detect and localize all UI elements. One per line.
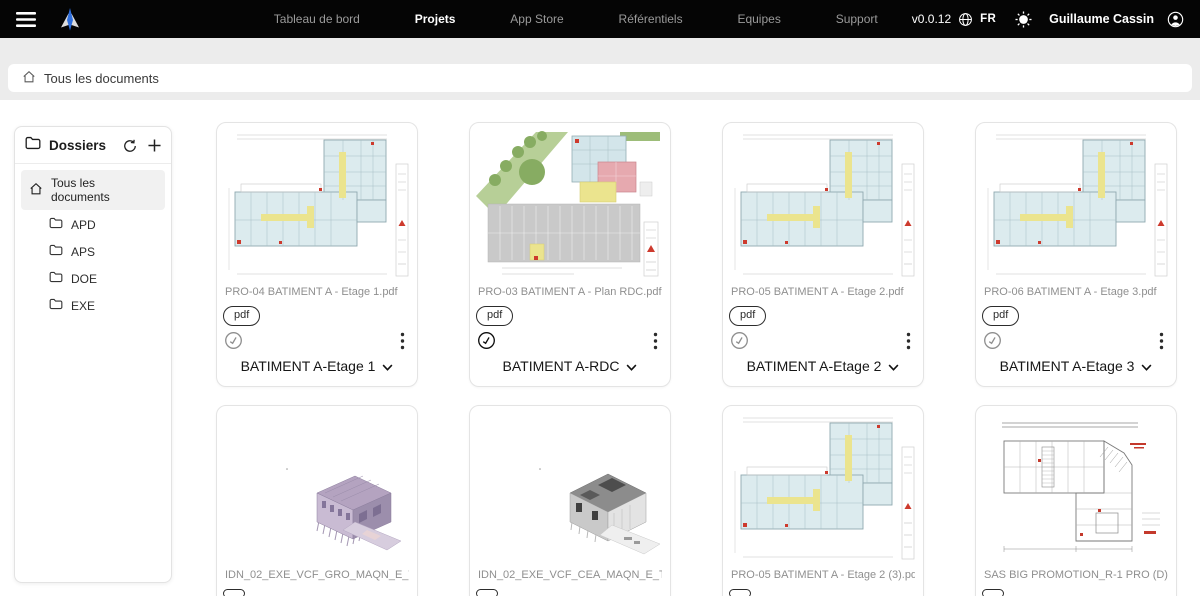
more-options-icon[interactable] <box>906 332 911 350</box>
main-nav: Tableau de bordProjetsApp StoreRéférenti… <box>274 12 878 26</box>
user-name[interactable]: Guillaume Cassin <box>1049 12 1154 26</box>
folder-label: APD <box>71 218 96 232</box>
document-thumbnail[interactable] <box>976 123 1176 283</box>
document-thumbnail[interactable] <box>217 406 417 566</box>
location-dropdown[interactable]: BATIMENT A-RDC <box>470 358 670 374</box>
document-filename: IDN_02_EXE_VCF_GRO_MAQN_E_TN_TZS_... <box>225 569 409 581</box>
document-filename: PRO-06 BATIMENT A - Etage 3.pdf <box>984 286 1168 298</box>
document-card[interactable]: PRO-03 BATIMENT A - Plan RDC.pdfpdfBATIM… <box>469 122 671 387</box>
chevron-down-icon <box>382 358 393 374</box>
location-dropdown[interactable]: BATIMENT A-Etage 2 <box>723 358 923 374</box>
document-filename: IDN_02_EXE_VCF_CEA_MAQN_E_TN_TZS_... <box>478 569 662 581</box>
folder-label: APS <box>71 245 95 259</box>
filetype-badge: pdf <box>729 306 766 326</box>
breadcrumb[interactable]: Tous les documents <box>8 64 1192 92</box>
document-card[interactable]: PRO-05 BATIMENT A - Etage 2.pdfpdfBATIME… <box>722 122 924 387</box>
document-filename: PRO-03 BATIMENT A - Plan RDC.pdf <box>478 286 662 298</box>
main-content: Dossiers <box>0 100 1200 596</box>
document-filename: PRO-05 BATIMENT A - Etage 2 (3).pdf <box>731 569 915 581</box>
filetype-badge <box>982 589 1004 596</box>
nav-link-projets[interactable]: Projets <box>415 12 456 26</box>
filetype-badge <box>223 589 245 596</box>
folder-label: DOE <box>71 272 97 286</box>
validate-check-icon[interactable] <box>983 331 1002 350</box>
menu-icon[interactable] <box>16 12 36 27</box>
sidebar-folder-doe[interactable]: DOE <box>15 266 171 291</box>
nav-link-r-f-rentiels[interactable]: Référentiels <box>619 12 683 26</box>
document-thumbnail[interactable] <box>976 406 1176 566</box>
document-card[interactable]: PRO-04 BATIMENT A - Etage 1.pdfpdfBATIME… <box>216 122 418 387</box>
document-filename: SAS BIG PROMOTION_R-1 PRO (D).pdf <box>984 569 1168 581</box>
chevron-down-icon <box>626 358 637 374</box>
location-label: BATIMENT A-RDC <box>503 358 620 374</box>
validate-check-icon[interactable] <box>224 331 243 350</box>
nav-link-equipes[interactable]: Equipes <box>737 12 780 26</box>
filetype-badge: pdf <box>982 306 1019 326</box>
sidebar-folder-apd[interactable]: APD <box>15 212 171 237</box>
folder-label: EXE <box>71 299 95 313</box>
top-navbar: Tableau de bordProjetsApp StoreRéférenti… <box>0 0 1200 38</box>
language-label[interactable]: FR <box>980 13 996 25</box>
nav-link-app-store[interactable]: App Store <box>510 12 563 26</box>
document-thumbnail[interactable] <box>723 123 923 283</box>
app-root: Tableau de bordProjetsApp StoreRéférenti… <box>0 0 1200 596</box>
sidebar-item-label: Tous les documents <box>51 176 157 204</box>
sidebar-header: Dossiers <box>15 127 171 163</box>
document-card[interactable]: IDN_02_EXE_VCF_CEA_MAQN_E_TN_TZS_... <box>469 405 671 596</box>
location-label: BATIMENT A-Etage 1 <box>241 358 376 374</box>
chevron-down-icon <box>888 358 899 374</box>
filetype-badge <box>476 589 498 596</box>
nav-link-support[interactable]: Support <box>836 12 878 26</box>
validate-check-icon[interactable] <box>730 331 749 350</box>
document-thumbnail[interactable] <box>217 123 417 283</box>
filetype-badge <box>729 589 751 596</box>
document-card[interactable]: PRO-05 BATIMENT A - Etage 2 (3).pdf <box>722 405 924 596</box>
nav-link-tableau-de-bord[interactable]: Tableau de bord <box>274 12 360 26</box>
location-label: BATIMENT A-Etage 3 <box>1000 358 1135 374</box>
folder-icon <box>49 298 63 313</box>
app-logo-icon[interactable] <box>58 7 82 31</box>
document-filename: PRO-05 BATIMENT A - Etage 2.pdf <box>731 286 915 298</box>
filetype-badge: pdf <box>476 306 513 326</box>
folders-sidebar: Dossiers <box>14 126 172 583</box>
folder-list: APDAPSDOEEXE <box>15 212 171 318</box>
sidebar-folder-exe[interactable]: EXE <box>15 293 171 318</box>
validate-check-icon[interactable] <box>477 331 496 350</box>
more-options-icon[interactable] <box>653 332 658 350</box>
document-thumbnail[interactable] <box>470 406 670 566</box>
sidebar-title: Dossiers <box>49 138 106 153</box>
more-options-icon[interactable] <box>1159 332 1164 350</box>
location-label: BATIMENT A-Etage 2 <box>747 358 882 374</box>
account-icon[interactable] <box>1167 11 1184 28</box>
refresh-icon[interactable] <box>123 139 137 153</box>
document-filename: PRO-04 BATIMENT A - Etage 1.pdf <box>225 286 409 298</box>
document-thumbnail[interactable] <box>470 123 670 283</box>
sidebar-divider <box>15 163 171 164</box>
sidebar-item-all-documents[interactable]: Tous les documents <box>21 170 165 210</box>
globe-icon[interactable] <box>958 12 973 27</box>
location-dropdown[interactable]: BATIMENT A-Etage 1 <box>217 358 417 374</box>
theme-toggle-icon[interactable] <box>1015 11 1032 28</box>
folder-icon <box>49 217 63 232</box>
folder-icon <box>49 271 63 286</box>
folder-icon <box>25 136 41 155</box>
breadcrumb-label: Tous les documents <box>44 71 159 86</box>
navbar-right: v0.0.12 FR Guilla <box>912 11 1184 28</box>
chevron-down-icon <box>1141 358 1152 374</box>
folder-icon <box>49 244 63 259</box>
document-card[interactable]: IDN_02_EXE_VCF_GRO_MAQN_E_TN_TZS_... <box>216 405 418 596</box>
home-icon <box>29 182 43 199</box>
filetype-badge: pdf <box>223 306 260 326</box>
document-thumbnail[interactable] <box>723 406 923 566</box>
plus-icon[interactable] <box>148 139 161 152</box>
breadcrumb-band: Tous les documents <box>0 38 1200 100</box>
more-options-icon[interactable] <box>400 332 405 350</box>
sidebar-folder-aps[interactable]: APS <box>15 239 171 264</box>
version-label: v0.0.12 <box>912 12 951 26</box>
home-icon <box>22 70 36 87</box>
document-card[interactable]: PRO-06 BATIMENT A - Etage 3.pdfpdfBATIME… <box>975 122 1177 387</box>
documents-grid: PRO-04 BATIMENT A - Etage 1.pdfpdfBATIME… <box>216 122 1177 596</box>
location-dropdown[interactable]: BATIMENT A-Etage 3 <box>976 358 1176 374</box>
document-card[interactable]: SAS BIG PROMOTION_R-1 PRO (D).pdf <box>975 405 1177 596</box>
